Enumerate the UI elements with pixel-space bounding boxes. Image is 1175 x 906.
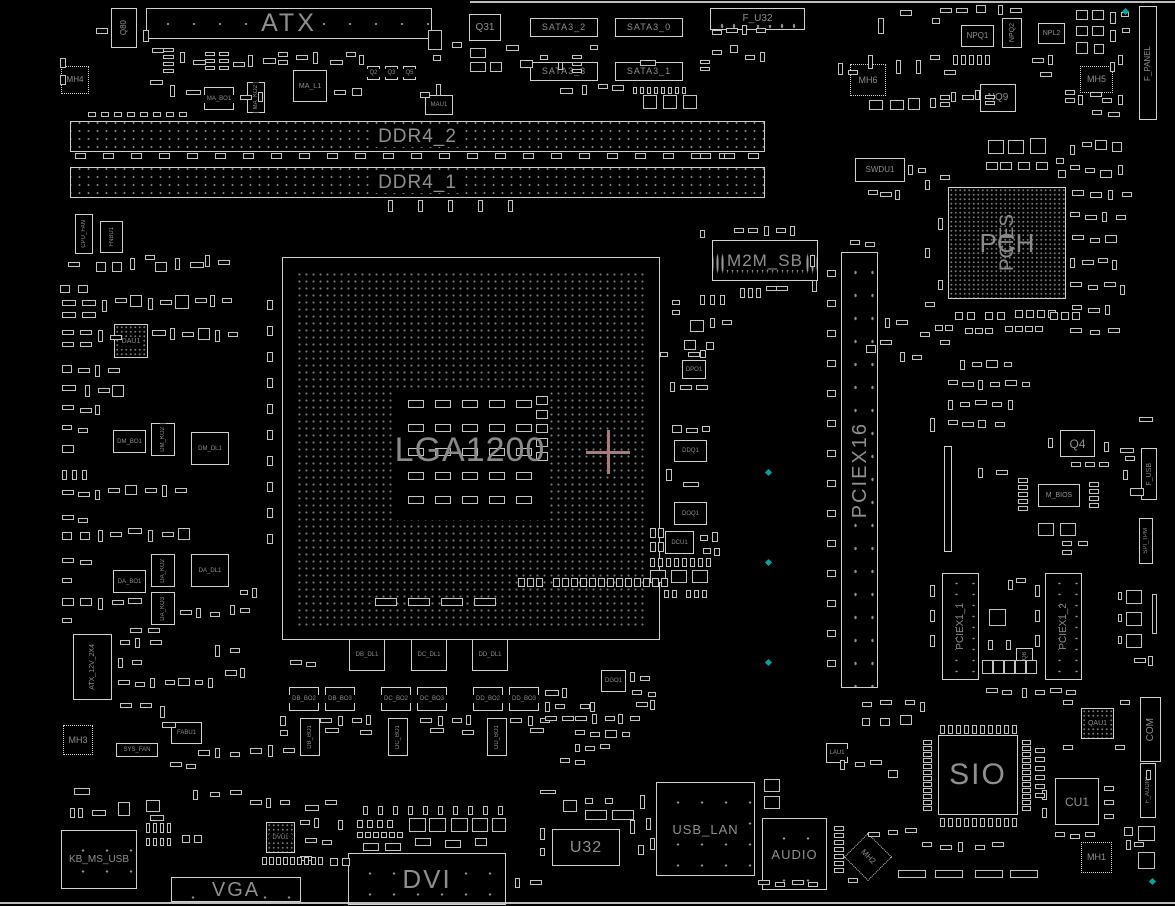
passive: [195, 298, 207, 303]
passive: [1004, 362, 1012, 367]
passive: [530, 728, 544, 733]
passive: [72, 470, 77, 480]
passive: [314, 818, 319, 828]
passive: [776, 228, 786, 233]
passive: [1010, 870, 1038, 878]
passive: [411, 153, 422, 159]
passive: [451, 818, 468, 832]
passive: [714, 548, 720, 556]
passive: [572, 69, 582, 73]
passive: [545, 702, 550, 712]
passive: [672, 425, 682, 433]
passive: [267, 326, 273, 336]
q3-label: Q3: [385, 69, 399, 77]
passive: [985, 95, 995, 99]
passive: [102, 300, 107, 312]
passive: [585, 798, 593, 804]
passive: [663, 153, 674, 159]
passive: [233, 62, 245, 67]
passive: [923, 776, 932, 781]
passive: [972, 818, 977, 827]
passive: [616, 578, 623, 587]
passive: [840, 760, 845, 770]
component-dm_dl1: DM_DL1: [191, 432, 229, 465]
passive: [862, 718, 870, 726]
component-dc_dl1: DC_DL1: [411, 639, 447, 671]
passive: [1035, 784, 1045, 789]
passive: [890, 100, 904, 110]
passive: [598, 578, 605, 587]
passive: [700, 60, 710, 64]
passive: [1092, 110, 1102, 115]
passive: [992, 402, 1002, 407]
passive: [712, 30, 722, 35]
passive: [868, 55, 873, 69]
passive: [98, 388, 110, 393]
passive: [925, 180, 930, 190]
passive: [470, 48, 486, 58]
passive: [834, 854, 844, 859]
passive: [880, 700, 892, 705]
passive: [1063, 700, 1073, 705]
passive: [1076, 26, 1088, 36]
passive: [960, 360, 965, 370]
passive: [248, 55, 253, 67]
passive: [1085, 462, 1095, 467]
passive: [1006, 640, 1011, 650]
passive: [988, 640, 993, 650]
passive: [508, 200, 513, 212]
component-mh3: MH3: [63, 725, 93, 755]
passive: [684, 340, 696, 350]
sio-label: SIO: [946, 759, 1010, 791]
passive: [880, 340, 892, 345]
passive: [827, 510, 836, 517]
passive: [748, 153, 759, 159]
passive: [62, 312, 76, 318]
passive: [1018, 162, 1030, 170]
passive: [1070, 212, 1080, 217]
passive: [208, 678, 213, 688]
passive: [510, 718, 522, 723]
passive: [112, 385, 124, 397]
component-dm_ko2: DM_KO2: [151, 423, 175, 456]
passive: [179, 112, 187, 117]
passive: [472, 818, 488, 832]
passive: [702, 426, 710, 432]
passive: [940, 725, 945, 734]
passive: [175, 258, 180, 270]
passive: [560, 88, 573, 94]
passive: [961, 55, 966, 65]
passive: [101, 112, 109, 117]
passive: [962, 95, 974, 100]
passive: [82, 300, 96, 306]
passive: [159, 153, 170, 159]
cpu_fan-label: CPU_FAN: [81, 217, 87, 251]
passive: [1134, 658, 1146, 663]
passive: [607, 578, 614, 587]
passive: [948, 420, 958, 425]
passive: [650, 558, 655, 567]
passive: [923, 764, 932, 769]
passive: [633, 87, 637, 94]
passive: [996, 725, 1001, 734]
passive: [1098, 258, 1108, 263]
passive: [690, 320, 704, 332]
passive: [462, 472, 478, 480]
passive: [1048, 438, 1053, 448]
passive: [827, 360, 836, 367]
passive: [222, 298, 232, 303]
passive: [130, 295, 142, 307]
component-vga: VGA: [171, 877, 301, 902]
passive: [95, 405, 100, 415]
dm_dl1-label: DM_DL1: [195, 445, 225, 453]
passive: [1025, 326, 1033, 332]
passive: [178, 528, 190, 540]
passive: [474, 598, 496, 606]
passive: [363, 806, 368, 815]
passive: [1118, 165, 1123, 175]
passive: [827, 570, 836, 577]
db_bo3-label: DB_BO3: [325, 695, 355, 703]
passive: [940, 818, 945, 827]
passive: [523, 153, 534, 159]
passive: [74, 788, 90, 795]
passive: [278, 52, 288, 57]
component-sata3_3: SATA3_3: [530, 62, 598, 81]
passive: [764, 226, 769, 236]
passive: [1004, 660, 1015, 674]
passive: [96, 28, 108, 34]
dgo1-label: DGO1: [602, 677, 625, 685]
passive: [205, 52, 215, 56]
passive: [712, 532, 718, 542]
passive: [1148, 656, 1153, 666]
passive: [1015, 326, 1023, 332]
pciex1_1-label: PCIEX1_1: [956, 600, 966, 653]
passive: [375, 598, 397, 606]
mh4-label: MH4: [64, 75, 87, 85]
passive: [120, 640, 130, 645]
passive: [240, 95, 252, 100]
f_panel-label: F_PANEL: [1144, 43, 1152, 84]
passive: [900, 352, 905, 362]
da_ko2-label: DA_KO2: [160, 556, 166, 586]
passive: [438, 806, 443, 815]
passive: [78, 492, 90, 497]
passive: [764, 796, 780, 809]
q4-label: Q4: [1066, 437, 1088, 451]
passive: [661, 87, 665, 94]
passive: [978, 468, 983, 478]
passive: [1146, 770, 1151, 780]
passive: [325, 728, 339, 733]
component-ma_l1: MA_L1: [293, 70, 327, 102]
passive: [925, 248, 930, 258]
passive: [357, 832, 363, 838]
passive: [712, 50, 722, 55]
passive: [518, 578, 525, 587]
passive: [730, 45, 738, 53]
passive: [352, 88, 362, 96]
passive: [198, 328, 210, 340]
qau1-label: QAU1: [1085, 719, 1110, 728]
dvi-label: DVI: [399, 865, 454, 893]
passive: [650, 838, 655, 850]
passive: [827, 450, 836, 457]
component-cpu_fan: CPU_FAN: [75, 214, 93, 254]
passive: [612, 810, 634, 820]
spi_tpm-label: SPI_TPM: [1143, 525, 1149, 557]
cu1-label: CU1: [1062, 795, 1092, 809]
passive: [1022, 770, 1031, 775]
passive: [60, 75, 66, 85]
passive: [920, 702, 925, 712]
passive: [1035, 757, 1045, 762]
passive: [869, 100, 883, 110]
component-kb_ms_usb: KB_MS_USB: [61, 830, 137, 889]
component-q80: Q80: [111, 8, 137, 48]
passive: [925, 302, 935, 307]
passive: [110, 335, 122, 340]
passive: [62, 515, 74, 520]
pch-vertical-text: PCIES: [998, 211, 1017, 274]
passive: [115, 298, 127, 303]
da_bo1-label: DA_BO1: [115, 578, 145, 586]
passive: [1018, 506, 1028, 511]
passive: [62, 342, 74, 347]
passive: [1104, 814, 1114, 819]
test-point: [765, 559, 772, 566]
passive: [385, 843, 401, 851]
passive: [658, 558, 663, 567]
passive: [965, 328, 973, 334]
passive: [1110, 30, 1116, 42]
passive: [334, 90, 346, 95]
passive: [1105, 235, 1117, 243]
passive: [993, 660, 1004, 674]
passive: [948, 725, 953, 734]
sata3_0-label: SATA3_0: [624, 22, 674, 33]
passive: [175, 295, 189, 309]
mh2-label: MH2: [856, 845, 879, 868]
kb_ms_usb-label: KB_MS_USB: [66, 854, 132, 866]
passive: [1015, 660, 1026, 674]
passive: [528, 716, 533, 726]
passive: [650, 528, 656, 538]
passive: [551, 153, 562, 159]
atx-label: ATX: [258, 10, 320, 37]
passive: [1063, 745, 1073, 750]
test-point: [1149, 878, 1156, 885]
passive: [135, 682, 145, 687]
passive: [296, 55, 308, 60]
passive: [740, 288, 745, 298]
passive: [267, 300, 273, 310]
passive: [810, 255, 815, 267]
passive: [1120, 448, 1134, 453]
passive: [1078, 95, 1083, 105]
passive: [186, 764, 196, 769]
fnbu1-label: FNBU1: [109, 224, 115, 250]
passive: [1022, 688, 1027, 698]
passive: [1092, 26, 1104, 36]
passive: [1035, 775, 1045, 780]
passive: [1035, 690, 1045, 695]
passive: [1072, 235, 1084, 240]
passive: [700, 230, 705, 238]
component-sys_fan: SYS_FAN: [116, 743, 158, 757]
passive: [742, 25, 747, 35]
passive: [745, 55, 755, 60]
passive: [1002, 690, 1012, 695]
passive: [366, 715, 371, 725]
passive: [590, 702, 595, 712]
passive: [923, 740, 932, 745]
passive: [150, 640, 162, 645]
passive: [428, 30, 442, 50]
passive: [1022, 740, 1031, 745]
passive: [383, 153, 394, 159]
component-dvu1: DVU1: [266, 822, 295, 853]
passive: [338, 716, 343, 726]
passive: [560, 758, 570, 763]
passive: [228, 332, 238, 337]
passive: [160, 823, 164, 833]
passive: [776, 286, 788, 291]
passive: [210, 612, 220, 617]
passive: [923, 806, 932, 811]
passive: [215, 330, 220, 342]
passive: [327, 153, 338, 159]
passive: [1138, 852, 1155, 869]
passive: [1100, 170, 1112, 178]
passive: [1125, 456, 1135, 461]
ma_bo1-label: MA_BO1: [204, 95, 234, 103]
passive: [575, 716, 587, 721]
component-com: COM: [1140, 697, 1161, 762]
passive: [634, 578, 641, 587]
passive: [170, 328, 175, 340]
passive: [190, 262, 204, 268]
component-q4: Q4: [1060, 430, 1095, 457]
passive: [1115, 745, 1125, 750]
passive: [1082, 260, 1094, 265]
passive: [536, 396, 548, 405]
passive: [1110, 12, 1116, 24]
component-da_ko2: DA_KO2: [151, 554, 175, 587]
passive: [862, 702, 872, 707]
passive: [664, 590, 669, 598]
passive: [436, 84, 441, 96]
passive: [1032, 58, 1044, 63]
passive: [923, 752, 932, 757]
passive: [527, 578, 534, 587]
passive: [1126, 612, 1142, 626]
passive: [1022, 752, 1031, 757]
passive: [118, 802, 130, 816]
passive: [166, 112, 174, 117]
passive: [152, 330, 166, 336]
passive: [1008, 400, 1013, 410]
passive: [267, 378, 273, 388]
dd_bo2-label: DD_BO2: [473, 695, 503, 703]
passive: [1012, 818, 1017, 827]
passive: [880, 718, 890, 726]
passive: [438, 716, 443, 726]
passive: [572, 62, 582, 66]
npl2-label: NPL2: [1040, 29, 1064, 38]
passive: [790, 226, 795, 236]
passive: [916, 60, 921, 74]
passive: [95, 490, 100, 500]
passive: [1072, 305, 1082, 310]
passive: [838, 63, 843, 75]
passive: [516, 400, 532, 408]
passive: [912, 355, 922, 360]
component-dc_bo2: DC_BO2: [381, 687, 411, 711]
passive: [175, 488, 187, 493]
q31-label: Q31: [473, 22, 498, 34]
passive: [748, 288, 753, 298]
passive: [103, 153, 114, 159]
passive: [870, 760, 882, 765]
passive: [205, 255, 210, 267]
passive: [706, 558, 711, 567]
passive: [1130, 488, 1144, 496]
passive: [135, 638, 140, 648]
component-dd_dl1: DD_DL1: [472, 639, 508, 671]
passive: [808, 882, 818, 887]
passive: [445, 840, 461, 848]
passive: [210, 792, 220, 797]
passive: [607, 153, 618, 159]
mh3-label: MH3: [65, 735, 90, 746]
passive: [652, 578, 659, 587]
passive: [675, 87, 679, 94]
passive: [68, 262, 80, 267]
component-doq1: DOQ1: [674, 502, 707, 525]
passive: [683, 482, 699, 487]
passive: [636, 702, 648, 707]
component-f_panel: F_PANEL: [1139, 6, 1157, 120]
passive: [986, 360, 998, 368]
passive: [1035, 748, 1045, 753]
passive: [408, 806, 413, 815]
passive: [267, 534, 273, 544]
passive: [530, 880, 542, 885]
passive: [694, 590, 699, 598]
passive: [1104, 800, 1114, 805]
component-da_ko3: DA_KO3: [151, 592, 175, 625]
db_dl1-label: DB_DL1: [353, 651, 382, 659]
passive: [540, 55, 548, 60]
passive: [163, 62, 174, 66]
passive: [146, 823, 150, 833]
passive: [922, 842, 932, 847]
passive: [453, 806, 458, 815]
passive: [381, 832, 387, 838]
passive: [225, 670, 237, 676]
passive: [359, 55, 364, 65]
passive: [666, 469, 672, 481]
passive: [125, 485, 137, 495]
dd_dl1-label: DD_DL1: [475, 651, 504, 659]
passive: [269, 857, 274, 865]
passive: [266, 798, 271, 808]
